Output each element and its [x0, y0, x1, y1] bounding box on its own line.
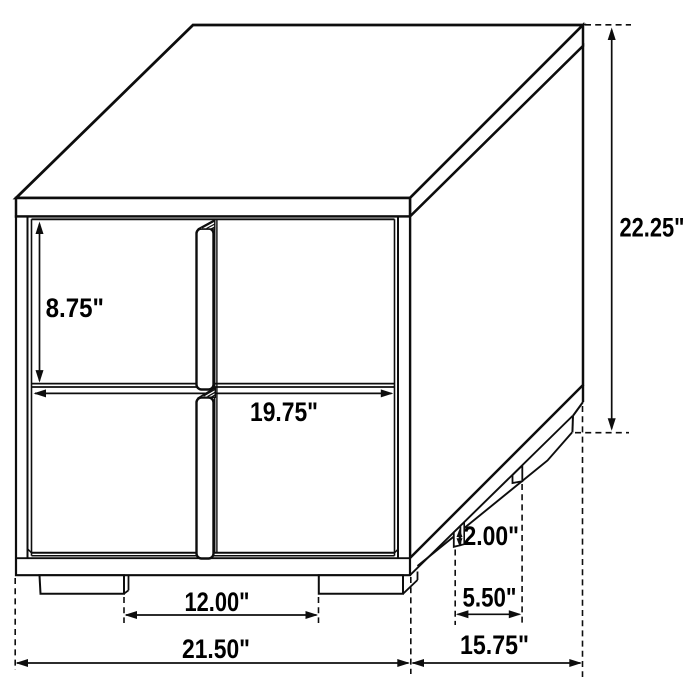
- svg-text:8.75": 8.75": [46, 293, 104, 323]
- svg-text:19.75": 19.75": [250, 397, 318, 427]
- svg-text:15.75": 15.75": [460, 630, 529, 660]
- svg-text:5.50": 5.50": [463, 583, 517, 613]
- svg-text:2.00": 2.00": [464, 521, 520, 551]
- svg-text:12.00": 12.00": [185, 587, 250, 617]
- svg-text:22.25": 22.25": [620, 213, 685, 243]
- svg-text:21.50": 21.50": [182, 634, 250, 664]
